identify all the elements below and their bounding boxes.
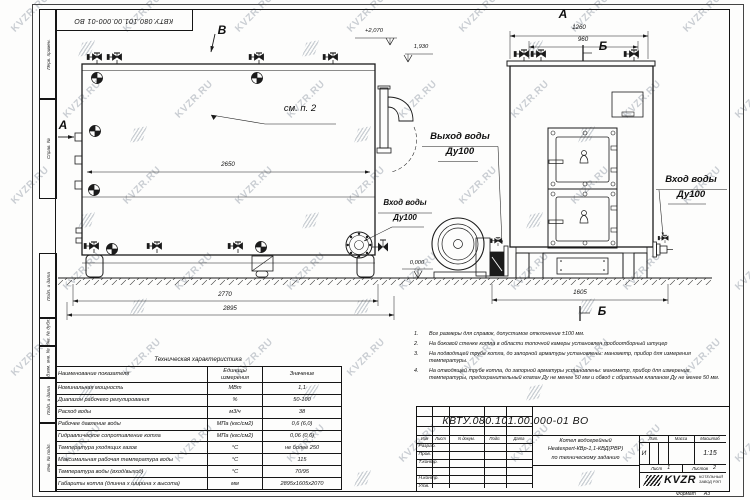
title-block: КВТУ.080.101.00.000-01 ВО Изм Лист N док… [416,406,730,492]
tb-col-ndoc: N докум. [449,435,484,443]
tb-sheet-cell: Лист 1 [639,464,682,472]
note-number: 3. [414,351,424,366]
tb-col-data: Дата [506,435,532,443]
tb-title-line2: Heatexpert-КВр-1,1-КВД(РВР) [532,445,639,453]
tech-table-cell: Температура воды (вход/выход) [56,466,208,478]
tb-row-prov: Пров. [417,451,451,459]
note-text: На подводящей трубе котла, до запорной а… [429,351,726,366]
note-item: 2.На боковой стенке котла в области топо… [414,341,726,348]
tb-row-empty [417,467,451,475]
tech-table: Наименование показателя Единицы измерени… [55,366,342,490]
tech-table-cell: Температура уходящих газов [56,442,208,454]
note-item: 3.На подводящей трубе котла, до запорной… [414,351,726,366]
company-logo-block: KVZR КОТЕЛЬНЫЙ ЗАВОД РЭП [639,472,729,488]
tech-table-header-row: Наименование показателя Единицы измерени… [56,367,342,383]
tb-mass-label: Масса [668,435,694,442]
tb-scale-value: 1:15 [694,442,726,464]
note-item: 1.Все размеры для справок, допустимое от… [414,331,726,338]
tech-table-cell: 1,1 [263,383,342,395]
tb-sheets-label: Листов [692,466,708,471]
tb-row-utv: Утв. [417,483,451,491]
view-b-label: В [207,24,237,37]
water-inlet-front-dn-label: Ду100 [652,190,730,200]
stamp-perv-primen: Перв. примен. [39,9,57,100]
tb-row-tkontr: Т.контр. [417,459,451,467]
tech-table-row: Номинальная мощностьМВт1,1 [56,383,342,395]
tech-table-cell: °С [208,454,263,466]
stamp-podp-data-1: Подп. и дата [39,253,57,319]
tech-table-cell: °С [208,466,263,478]
section-b-bottom-label: Б [591,305,613,318]
kvzr-logo-text: KVZR [664,474,696,486]
tech-table-row: Гидравлическое сопротивление котлаМПа (к… [56,430,342,442]
tech-table-cell: Габариты котла (длинна х ширина х высота… [56,478,208,490]
tb-lit-value: И [639,442,649,464]
note-number: 1. [414,331,424,338]
note-text: На боковой стенке котла в области топочн… [429,341,726,348]
tech-table-row: Диапазон рабочего регулирования%50-100 [56,394,342,406]
tech-table-cell: % [208,394,263,406]
dim-2895: 2895 [190,306,270,313]
note-text: На отводящей трубе котла, до запорной ар… [429,368,726,383]
tech-table-cell: Максимальная рабочая температура воды [56,454,208,466]
tech-table-cell: 38 [263,406,342,418]
company-name-line2: ЗАВОД РЭП [699,480,723,485]
tech-table-cell: 50-100 [263,394,342,406]
tb-col-list: Лист [432,435,449,443]
dim-1605: 1605 [540,290,620,297]
tb-row-nkontr: Н.контр. [417,475,451,483]
tech-table-cell: МПа (кгс/см2) [208,430,263,442]
tech-table-cell: Гидравлическое сопротивление котла [56,430,208,442]
dim-1260: 1260 [539,25,619,32]
tech-table-cell: Номинальная мощность [56,383,208,395]
tb-title-line3: по техническому заданию [532,454,639,462]
tech-table-header: Единицы измерения [208,367,263,383]
tech-table-cell: 0,6 (6,0) [263,418,342,430]
company-name: КОТЕЛЬНЫЙ ЗАВОД РЭП [699,475,723,484]
tech-table-row: Расход водым3/ч38 [56,406,342,418]
tb-sheet-label: Лист [651,466,662,471]
water-outlet-dn-label: Ду100 [420,147,500,157]
notes-list: 1.Все размеры для справок, допустимое от… [414,331,726,385]
water-inlet-side-label: Вход воды [376,199,434,208]
tb-lit-label: Лит. [639,435,668,442]
tech-table-header: Наименование показателя [56,367,208,383]
water-inlet-side-dn-label: Ду100 [376,214,434,223]
tech-table-row: Габариты котла (длинна х ширина х высота… [56,478,342,490]
tech-table-cell: °С [208,442,263,454]
elevation-ground: 0,000 [399,260,435,266]
tech-table-cell: Диапазон рабочего регулирования [56,394,208,406]
tb-sheets-cell: Листов 2 [682,464,726,472]
water-inlet-front-label: Вход воды [652,175,730,185]
elevation-top: +2,070 [352,28,396,34]
tech-table-cell: МПа (кгс/см2) [208,418,263,430]
section-a-top-label: А [548,8,578,21]
stamp-inv-dubl: Инв. № дубл. [39,317,57,347]
dim-2650: 2650 [188,162,268,169]
elevation-flue: 1,930 [404,44,438,50]
doc-number-top-box: КВТУ.080.101.00.000-01 ВО [55,9,193,31]
tech-table-header: Значение [263,367,342,383]
doc-number-rotated: КВТУ.080.101.00.000-01 ВО [74,17,173,24]
tech-table-cell: МВт [208,383,263,395]
tech-table-row: Рабочее давление водыМПа (кгс/см2)0,6 (6… [56,418,342,430]
drawing-sheet: KVZR.RUKVZR.RUKVZR.RUKVZR.RUKVZR.RUKVZR.… [0,0,750,500]
tb-sheet-value: 1 [667,465,670,471]
see-note-label: см. п. 2 [260,104,340,114]
tech-table-cell: 70/95 [263,466,342,478]
water-outlet-label: Выход воды [420,132,500,142]
dim-960: 960 [543,37,623,44]
note-number: 4. [414,368,424,383]
tech-table-cell: Расход воды [56,406,208,418]
note-number: 2. [414,341,424,348]
tech-table-cell: Рабочее давление воды [56,418,208,430]
kvzr-logo-icon [643,475,663,486]
tech-table-cell: мм [208,478,263,490]
tb-scale-label: Масштаб [694,435,726,442]
tb-col-izm: Изм [417,435,432,443]
tech-table-cell: 2895х1605х2070 [263,478,342,490]
tech-table-row: Температура воды (вход/выход)°С70/95 [56,466,342,478]
tech-table-row: Максимальная рабочая температура воды°С1… [56,454,342,466]
tech-table-title: Техническая характеристика [55,356,341,363]
note-text: Все размеры для справок, допустимое откл… [429,331,726,338]
tech-table-cell: м3/ч [208,406,263,418]
tech-table-cell: 115 [263,454,342,466]
tb-product-title: Котел водогрейный Heatexpert-КВр-1,1-КВД… [532,437,639,465]
tech-table-body: Номинальная мощностьМВт1,1Диапазон рабоч… [56,383,342,490]
tech-table-cell: 0,06 (0,6) [263,430,342,442]
tb-col-podp: Подп. [484,435,506,443]
note-item: 4.На отводящей трубе котла, до запорной … [414,368,726,383]
tech-table-row: Температура уходящих газов°Сне более 250 [56,442,342,454]
dim-2770: 2770 [185,292,265,299]
section-a-side-label: А [50,119,76,132]
tb-title-line1: Котел водогрейный [532,437,639,445]
tb-sheets-value: 2 [713,465,716,471]
title-block-doc-number: КВТУ.080.101.00.000-01 ВО [417,407,614,435]
tech-table-cell: не более 250 [263,442,342,454]
tb-row-razrab: Разраб. [417,443,451,451]
stamp-sprav-no: Справ. № [39,98,57,199]
